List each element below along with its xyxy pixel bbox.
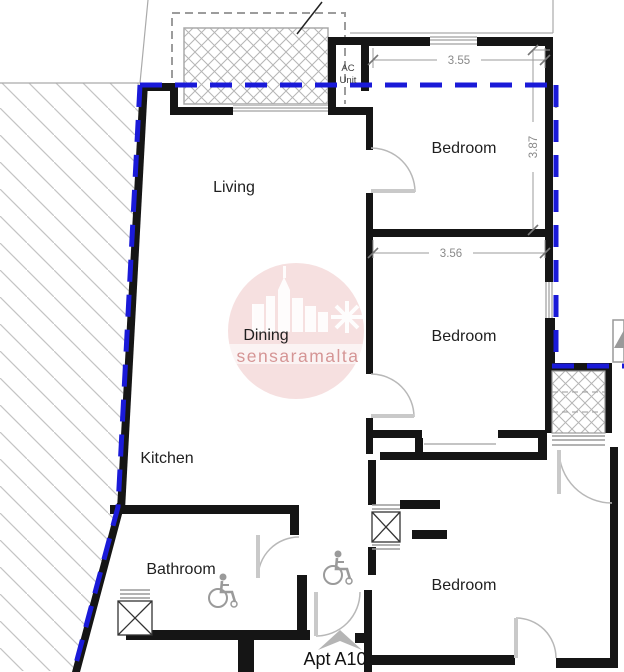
label-living: Living bbox=[213, 179, 255, 196]
watermark-text: sensaramalta bbox=[236, 346, 359, 366]
dimension-bedroom-top-width: 3.55 bbox=[448, 55, 470, 67]
label-bedroom-mid: Bedroom bbox=[432, 328, 497, 345]
window-living-top bbox=[233, 104, 328, 112]
dimension-bedroom-mid-width: 3.56 bbox=[440, 248, 462, 260]
column-bathroom bbox=[118, 590, 152, 635]
label-ac-unit-line2: Unit bbox=[340, 75, 357, 86]
service-shaft bbox=[552, 320, 624, 445]
door-bedroom-top bbox=[371, 148, 415, 192]
door-bedroom-bottom-hall bbox=[559, 450, 612, 503]
column-corridor bbox=[372, 505, 400, 549]
accessibility-icons bbox=[209, 551, 352, 608]
ac-condenser-icon bbox=[613, 320, 624, 362]
label-ac-unit-line1: AC bbox=[341, 63, 354, 74]
door-bathroom bbox=[258, 535, 299, 578]
boundary-lines bbox=[74, 85, 624, 671]
wheelchair-icon bbox=[324, 551, 352, 585]
label-bedroom-top: Bedroom bbox=[432, 140, 497, 157]
boundary-blue-dashed bbox=[74, 85, 624, 671]
dimension-bedroom-top-depth: 3.87 bbox=[528, 136, 540, 158]
floor-plan: sensaramalta bbox=[0, 0, 624, 672]
label-kitchen: Kitchen bbox=[140, 450, 193, 467]
window-bedroom-top bbox=[430, 36, 477, 45]
terrace bbox=[172, 2, 345, 104]
window-bedroom-mid bbox=[545, 282, 553, 318]
wheelchair-icon bbox=[209, 574, 237, 608]
label-bedroom-bottom: Bedroom bbox=[432, 577, 497, 594]
terrace-hatch bbox=[184, 28, 328, 104]
floor-plan-drawing: sensaramalta bbox=[0, 0, 624, 672]
label-apartment: Apt A10 bbox=[303, 649, 366, 669]
label-dining: Dining bbox=[243, 327, 288, 344]
door-bedroom-bottom bbox=[516, 618, 556, 658]
door-bedroom-mid bbox=[371, 374, 414, 417]
louver-band bbox=[552, 436, 605, 445]
label-bathroom: Bathroom bbox=[146, 561, 215, 578]
